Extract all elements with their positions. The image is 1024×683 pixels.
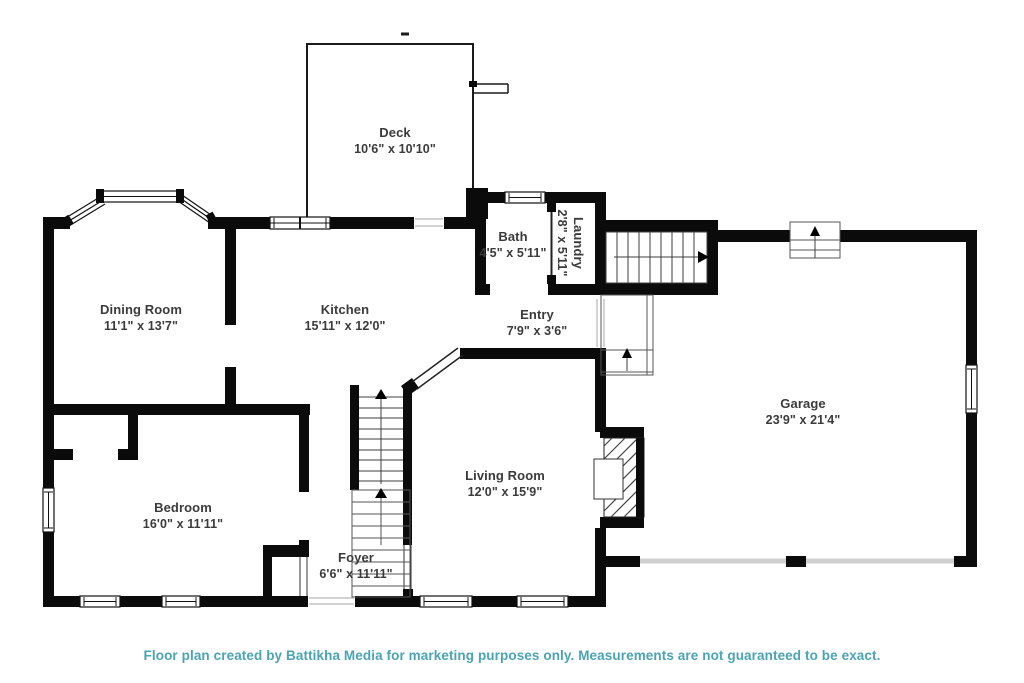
deck-step-cap: [469, 81, 477, 87]
basement-stairs: [606, 232, 709, 283]
sliding-door-window: [270, 217, 330, 229]
room-label-bedroom: Bedroom 16'0" x 11'11": [143, 499, 223, 533]
room-dims: 7'9" x 3'6": [507, 323, 568, 340]
window: [966, 365, 977, 413]
room-name: Garage: [766, 395, 841, 412]
window: [505, 192, 545, 203]
footer-disclaimer: Floor plan created by Battikha Media for…: [0, 648, 1024, 663]
interior-walls: [54, 229, 419, 597]
bay-window: [63, 189, 215, 226]
room-name: Bath: [480, 228, 547, 245]
room-dims: 11'1" x 13'7": [100, 318, 182, 335]
room-label-kitchen: Kitchen 15'11" x 12'0": [304, 301, 385, 335]
room-label-foyer: Foyer 6'6" x 11'11": [319, 549, 392, 583]
room-name: Living Room: [465, 467, 545, 484]
angled-railing: [412, 348, 463, 389]
room-dims: 6'6" x 11'11": [319, 566, 392, 583]
room-label-dining-room: Dining Room 11'1" x 13'7": [100, 301, 182, 335]
room-dims: 10'6" x 10'10": [354, 141, 436, 158]
room-label-living-room: Living Room 12'0" x 15'9": [465, 467, 545, 501]
room-dims: 15'11" x 12'0": [304, 318, 385, 335]
window: [43, 488, 54, 532]
room-dims: 23'9" x 21'4": [766, 412, 841, 429]
room-name: Foyer: [319, 549, 392, 566]
room-name: Dining Room: [100, 301, 182, 318]
room-label-deck: Deck 10'6" x 10'10": [354, 124, 436, 158]
window: [80, 596, 120, 607]
floor-plan-canvas: Deck 10'6" x 10'10" Dining Room 11'1" x …: [0, 0, 1024, 683]
room-dims: 12'0" x 15'9": [465, 484, 545, 501]
room-dims: 16'0" x 11'11": [143, 516, 223, 533]
room-label-laundry: Laundry 2'8" x 5'11": [553, 210, 587, 277]
room-name: Bedroom: [143, 499, 223, 516]
room-dims: 4'5" x 5'11": [480, 245, 547, 262]
stairs-up-arrow-icon: [375, 389, 387, 399]
floor-plan-drawing: [0, 0, 1024, 683]
room-name: Kitchen: [304, 301, 385, 318]
window: [420, 596, 472, 607]
room-dims: 2'8" x 5'11": [553, 210, 570, 277]
room-name: Entry: [507, 306, 568, 323]
room-label-entry: Entry 7'9" x 3'6": [507, 306, 568, 340]
garage-landing-steps: [601, 295, 653, 375]
room-label-garage: Garage 23'9" x 21'4": [766, 395, 841, 429]
room-name: Laundry: [570, 210, 587, 277]
room-name: Deck: [354, 124, 436, 141]
window: [517, 596, 568, 607]
firebox: [594, 459, 623, 499]
fireplace: [594, 427, 644, 528]
window: [162, 596, 200, 607]
garage-entry-steps: [790, 222, 840, 258]
room-label-bath: Bath 4'5" x 5'11": [480, 228, 547, 262]
